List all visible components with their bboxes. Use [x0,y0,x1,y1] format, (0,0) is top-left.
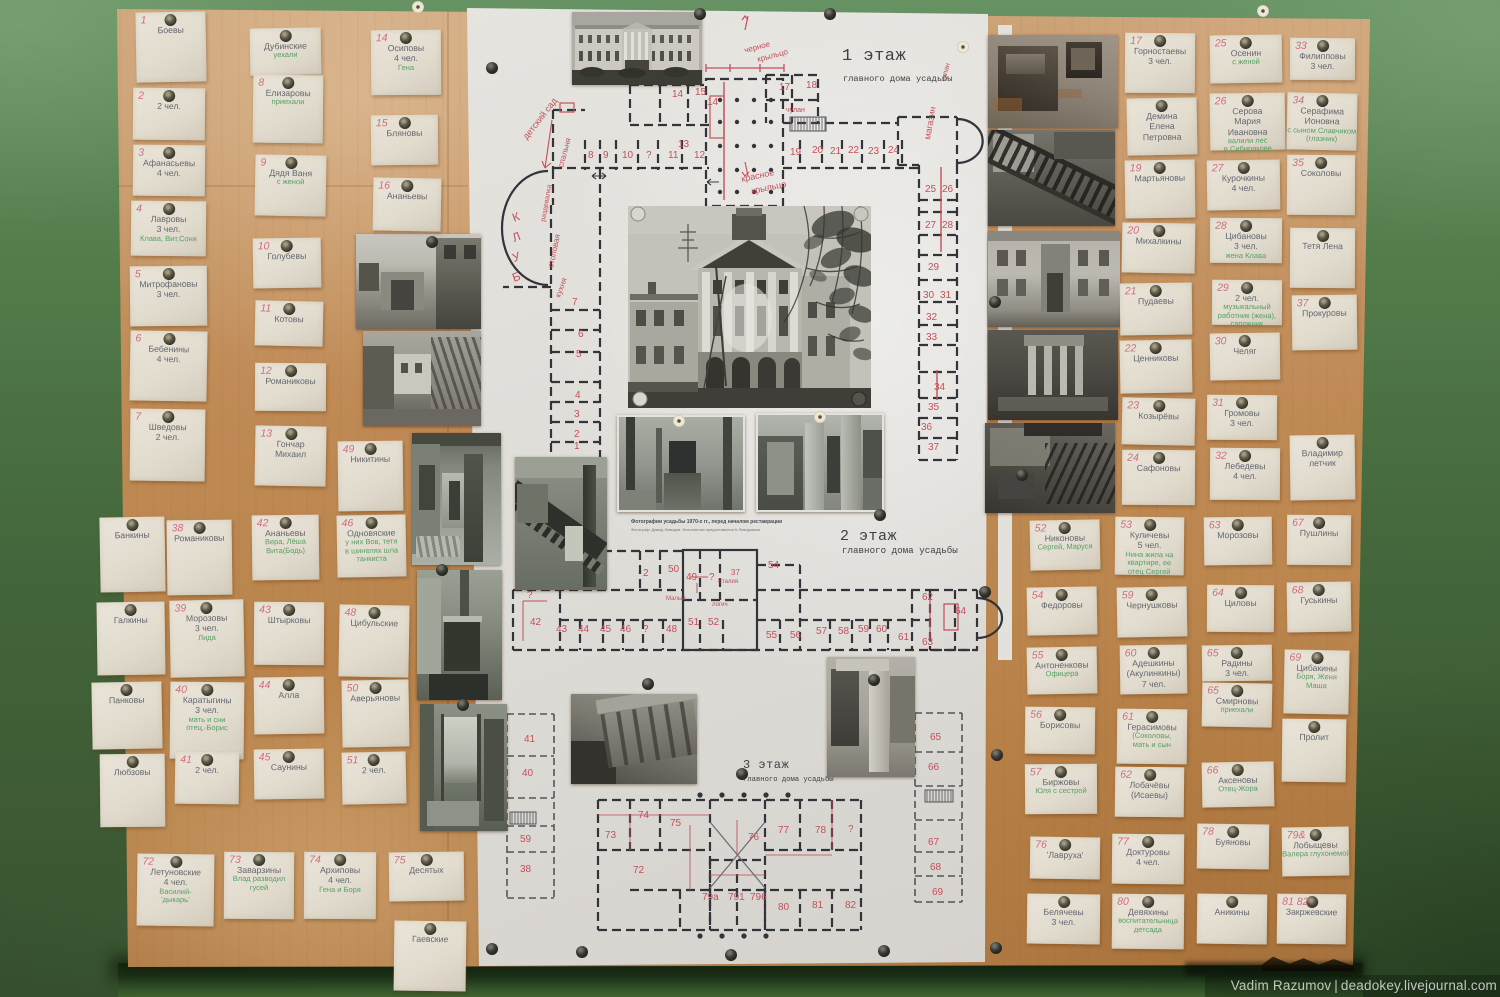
svg-text:34: 34 [934,382,946,393]
svg-text:45: 45 [600,624,612,635]
svg-text:55: 55 [766,630,778,641]
svg-text:2 этаж: 2 этаж [840,528,897,545]
svg-text:раздевалка: раздевалка [540,184,553,222]
svg-text:31: 31 [940,290,952,301]
svg-text:13: 13 [678,139,690,150]
svg-text:82: 82 [845,900,857,911]
svg-text:59: 59 [520,834,532,845]
svg-text:2: 2 [643,568,649,579]
svg-text:18: 18 [806,80,818,91]
svg-text:3: 3 [574,409,580,420]
svg-text:22: 22 [848,145,860,156]
svg-text:20: 20 [812,145,824,156]
svg-text:спальня: спальня [556,137,573,169]
svg-text:69: 69 [932,887,944,898]
svg-text:17: 17 [779,82,791,93]
svg-text:14: 14 [672,89,684,100]
svg-text:67: 67 [928,837,940,848]
svg-text:24: 24 [888,145,900,156]
svg-text:78: 78 [815,825,827,836]
svg-text:32: 32 [926,312,938,323]
svg-text:6: 6 [578,329,584,340]
svg-text:Б: Б [510,269,522,285]
svg-text:логич: логич [712,602,728,608]
svg-text:44: 44 [578,624,590,635]
svg-text:66: 66 [928,762,940,773]
svg-text:5: 5 [576,349,582,360]
svg-text:8: 8 [588,150,594,161]
svg-text:7: 7 [572,297,578,308]
svg-text:40: 40 [522,768,534,779]
svg-text:3 этаж: 3 этаж [743,758,790,772]
svg-text:35: 35 [928,402,940,413]
svg-text:11: 11 [668,150,679,161]
svg-text:23: 23 [868,146,880,157]
svg-text:41: 41 [524,734,536,745]
svg-text:77: 77 [778,825,790,836]
svg-text:36: 36 [921,422,933,433]
svg-text:58: 58 [838,626,850,637]
svg-text:60: 60 [876,624,888,635]
svg-text:?: ? [848,824,854,835]
svg-text:21: 21 [830,146,842,157]
svg-text:9: 9 [603,150,609,161]
svg-text:48: 48 [666,624,678,635]
svg-text:75: 75 [670,818,682,829]
svg-text:?: ? [527,590,533,601]
svg-text:2: 2 [574,429,580,440]
svg-text:42: 42 [530,617,542,628]
svg-text:Малый: Малый [666,595,686,602]
svg-text:27: 27 [925,220,937,231]
svg-text:50: 50 [668,564,680,575]
svg-text:46: 46 [620,624,632,635]
svg-text:Фотограф: Давид Левидов. Фотоп: Фотограф: Давид Левидов. Фотопленка пред… [631,527,760,532]
svg-text:крыльцо: крыльцо [750,179,787,196]
svg-text:Л: Л [510,229,522,245]
svg-text:15: 15 [695,87,707,98]
svg-text:63: 63 [922,637,934,648]
svg-text:?: ? [643,624,649,635]
svg-text:56: 56 [790,630,802,641]
svg-text:38: 38 [520,864,532,875]
svg-text:43: 43 [556,624,568,635]
svg-text:65: 65 [930,732,942,743]
svg-text:4: 4 [575,390,581,401]
svg-text:54: 54 [768,560,780,571]
svg-text:25: 25 [925,184,937,195]
svg-text:19: 19 [790,147,802,158]
svg-text:68: 68 [930,862,942,873]
svg-text:37: 37 [731,568,740,577]
svg-text:72: 72 [633,865,645,876]
svg-text:59: 59 [858,624,870,635]
svg-text:главного дома усадьбы: главного дома усадьбы [842,545,958,556]
svg-text:главного дома усадьбы: главного дома усадьбы [743,775,834,784]
svg-text:30: 30 [923,290,935,301]
svg-text:28: 28 [942,220,954,231]
svg-text:столовая: столовая [546,233,562,268]
svg-text:80: 80 [778,902,790,913]
svg-text:62: 62 [922,592,934,603]
svg-text:12: 12 [694,150,706,161]
svg-text:57: 57 [816,626,828,637]
svg-text:Еталия: Еталия [718,579,738,585]
svg-text:61: 61 [898,632,910,643]
svg-text:К: К [510,209,521,225]
svg-text:Фотографии усадьбы 1970-х гг.,: Фотографии усадьбы 1970-х гг., перед нач… [631,518,782,525]
svg-text:26: 26 [942,184,954,195]
svg-text:37: 37 [928,442,940,453]
svg-text:33: 33 [926,332,938,343]
svg-text:чулан: чулан [786,107,805,114]
svg-text:1: 1 [574,441,580,452]
svg-text:магазин: магазин [922,106,938,141]
svg-text:14: 14 [707,97,719,108]
svg-text:796: 796 [750,892,767,903]
svg-text:1 этаж: 1 этаж [842,47,907,66]
svg-text:51: 51 [688,617,700,628]
svg-text:76: 76 [748,832,760,843]
svg-text:главного дома усадьбы: главного дома усадьбы [843,74,952,84]
svg-text:29: 29 [928,262,940,273]
svg-text:79а: 79а [702,892,719,903]
svg-text:81: 81 [812,900,824,911]
svg-text:73: 73 [605,830,617,841]
svg-text:791: 791 [728,892,745,903]
svg-text:10: 10 [622,150,634,161]
svg-text:52: 52 [708,617,720,628]
svg-text:кухня: кухня [553,276,568,298]
svg-text:64: 64 [955,606,967,617]
svg-text:?: ? [709,572,715,583]
svg-text:?: ? [646,150,652,161]
